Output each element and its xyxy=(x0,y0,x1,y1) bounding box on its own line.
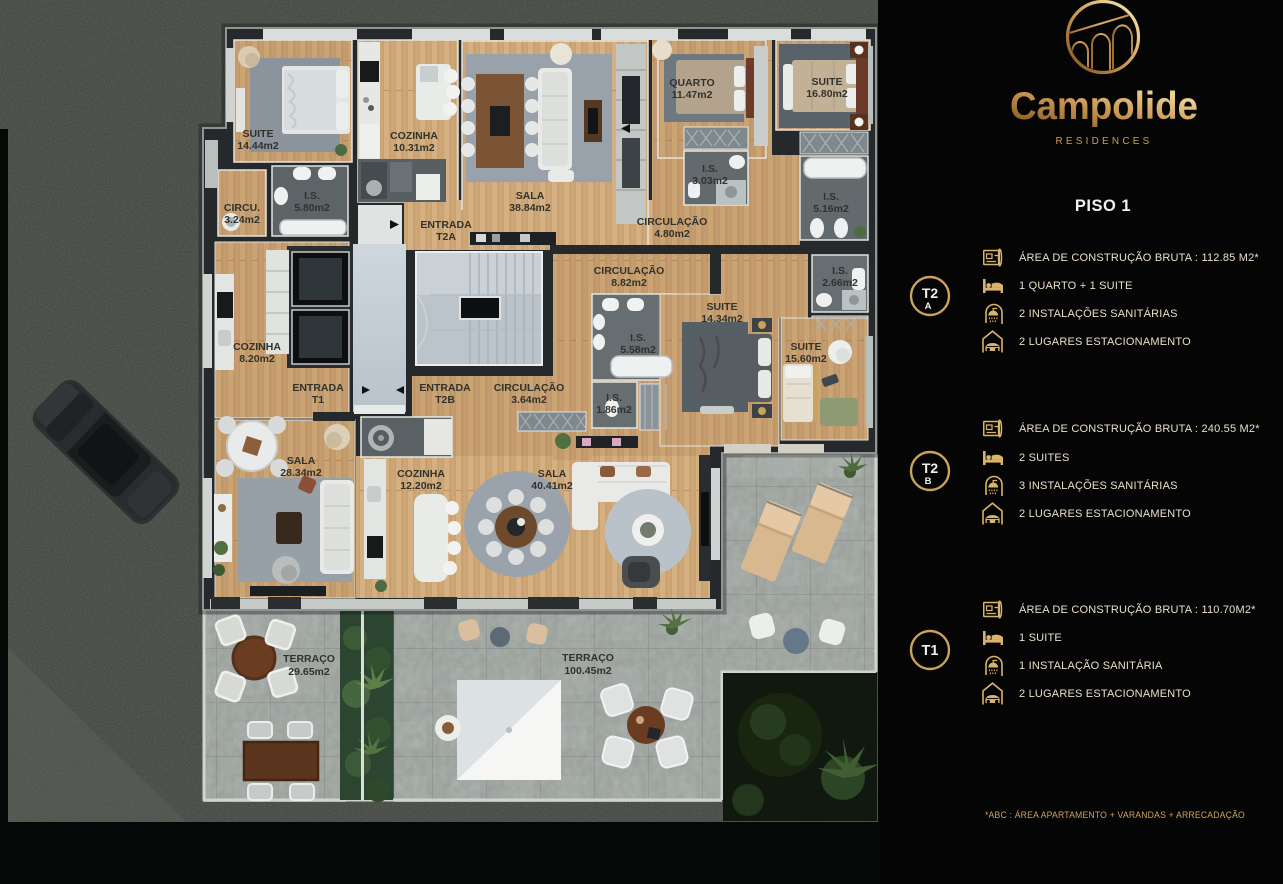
svg-text:T2: T2 xyxy=(922,460,939,476)
svg-text:40.41m2: 40.41m2 xyxy=(531,480,573,492)
svg-text:I.S.: I.S. xyxy=(304,190,320,202)
svg-text:1 SUITE: 1 SUITE xyxy=(1019,632,1062,644)
svg-text:TERRAÇO: TERRAÇO xyxy=(283,653,335,665)
svg-text:8.20m2: 8.20m2 xyxy=(239,353,275,365)
svg-text:T1: T1 xyxy=(922,643,939,659)
svg-text:RESIDENCES: RESIDENCES xyxy=(1056,135,1153,147)
svg-text:28.34m2: 28.34m2 xyxy=(280,467,322,479)
svg-text:SUITE: SUITE xyxy=(791,341,822,353)
svg-text:T2B: T2B xyxy=(435,394,455,406)
svg-text:ÁREA DE CONSTRUÇÃO BRUTA : 11: ÁREA DE CONSTRUÇÃO BRUTA : 110.70M2* xyxy=(1019,603,1256,616)
svg-text:2 INSTALAÇÕES SANITÁRIAS: 2 INSTALAÇÕES SANITÁRIAS xyxy=(1019,307,1178,320)
svg-text:I.S.: I.S. xyxy=(606,392,622,404)
svg-text:5.16m2: 5.16m2 xyxy=(813,203,849,215)
svg-text:SUITE: SUITE xyxy=(707,301,738,313)
svg-text:4.80m2: 4.80m2 xyxy=(654,228,690,240)
svg-text:QUARTO: QUARTO xyxy=(669,77,714,89)
svg-text:2.66m2: 2.66m2 xyxy=(822,277,858,289)
svg-text:2 LUGARES ESTACIONAMENTO: 2 LUGARES ESTACIONAMENTO xyxy=(1019,336,1191,348)
svg-text:I.S.: I.S. xyxy=(832,265,848,277)
svg-text:SALA: SALA xyxy=(516,190,545,202)
svg-text:3.64m2: 3.64m2 xyxy=(511,394,547,406)
svg-text:B: B xyxy=(925,476,932,487)
svg-text:SALA: SALA xyxy=(538,468,567,480)
svg-text:I.S.: I.S. xyxy=(630,332,646,344)
svg-text:TERRAÇO: TERRAÇO xyxy=(562,652,614,664)
svg-text:38.84m2: 38.84m2 xyxy=(509,202,551,214)
svg-text:2 SUITES: 2 SUITES xyxy=(1019,452,1070,464)
svg-text:COZINHA: COZINHA xyxy=(233,341,281,353)
svg-text:CIRCULAÇÃO: CIRCULAÇÃO xyxy=(594,264,665,277)
svg-text:PISO 1: PISO 1 xyxy=(1075,197,1131,215)
svg-text:CIRCULAÇÃO: CIRCULAÇÃO xyxy=(637,215,708,228)
svg-text:*ABC : ÁREA APARTAMENTO + VAR: *ABC : ÁREA APARTAMENTO + VARANDAS + ARR… xyxy=(985,810,1245,821)
svg-text:COZINHA: COZINHA xyxy=(390,130,438,142)
svg-text:2 LUGARES ESTACIONAMENTO: 2 LUGARES ESTACIONAMENTO xyxy=(1019,688,1191,700)
svg-text:Campolide: Campolide xyxy=(1010,85,1198,128)
svg-text:A: A xyxy=(925,301,932,312)
svg-text:ENTRADA: ENTRADA xyxy=(420,219,472,231)
svg-text:COZINHA: COZINHA xyxy=(397,468,445,480)
svg-text:5.58m2: 5.58m2 xyxy=(620,344,656,356)
svg-text:T2A: T2A xyxy=(436,231,456,243)
svg-text:I.S.: I.S. xyxy=(823,191,839,203)
svg-text:CIRCU.: CIRCU. xyxy=(224,202,260,214)
svg-text:ENTRADA: ENTRADA xyxy=(419,382,471,394)
svg-text:1 INSTALAÇÃO SANITÁRIA: 1 INSTALAÇÃO SANITÁRIA xyxy=(1019,659,1163,672)
svg-text:ÁREA DE CONSTRUÇÃO BRUTA : 24: ÁREA DE CONSTRUÇÃO BRUTA : 240.55 M2* xyxy=(1019,422,1260,435)
svg-text:12.20m2: 12.20m2 xyxy=(400,480,442,492)
svg-text:8.82m2: 8.82m2 xyxy=(611,277,647,289)
svg-text:SUITE: SUITE xyxy=(243,128,274,140)
svg-text:CIRCULAÇÃO: CIRCULAÇÃO xyxy=(494,381,565,394)
svg-text:SALA: SALA xyxy=(287,455,316,467)
svg-text:3.03m2: 3.03m2 xyxy=(692,175,728,187)
svg-text:15.60m2: 15.60m2 xyxy=(785,353,827,365)
svg-text:11.47m2: 11.47m2 xyxy=(672,89,713,101)
svg-text:I.S.: I.S. xyxy=(702,163,718,175)
svg-text:16.80m2: 16.80m2 xyxy=(806,88,848,100)
svg-text:T2: T2 xyxy=(922,285,939,301)
svg-text:29.65m2: 29.65m2 xyxy=(288,666,330,678)
svg-text:2 LUGARES ESTACIONAMENTO: 2 LUGARES ESTACIONAMENTO xyxy=(1019,508,1191,520)
svg-text:SUITE: SUITE xyxy=(812,76,843,88)
svg-text:T1: T1 xyxy=(312,394,324,406)
svg-text:1 QUARTO + 1 SUITE: 1 QUARTO + 1 SUITE xyxy=(1019,280,1133,292)
svg-text:1.86m2: 1.86m2 xyxy=(596,404,632,416)
svg-text:ENTRADA: ENTRADA xyxy=(292,382,344,394)
svg-text:3.24m2: 3.24m2 xyxy=(224,214,260,226)
svg-text:14.44m2: 14.44m2 xyxy=(237,140,279,152)
svg-text:5.80m2: 5.80m2 xyxy=(294,202,330,214)
svg-text:10.31m2: 10.31m2 xyxy=(393,142,435,154)
svg-text:100.45m2: 100.45m2 xyxy=(564,665,611,677)
svg-text:ÁREA DE CONSTRUÇÃO BRUTA : 11: ÁREA DE CONSTRUÇÃO BRUTA : 112.85 M2* xyxy=(1019,251,1259,264)
svg-text:14.34m2: 14.34m2 xyxy=(701,313,743,325)
svg-text:3 INSTALAÇÕES SANITÁRIAS: 3 INSTALAÇÕES SANITÁRIAS xyxy=(1019,479,1178,492)
